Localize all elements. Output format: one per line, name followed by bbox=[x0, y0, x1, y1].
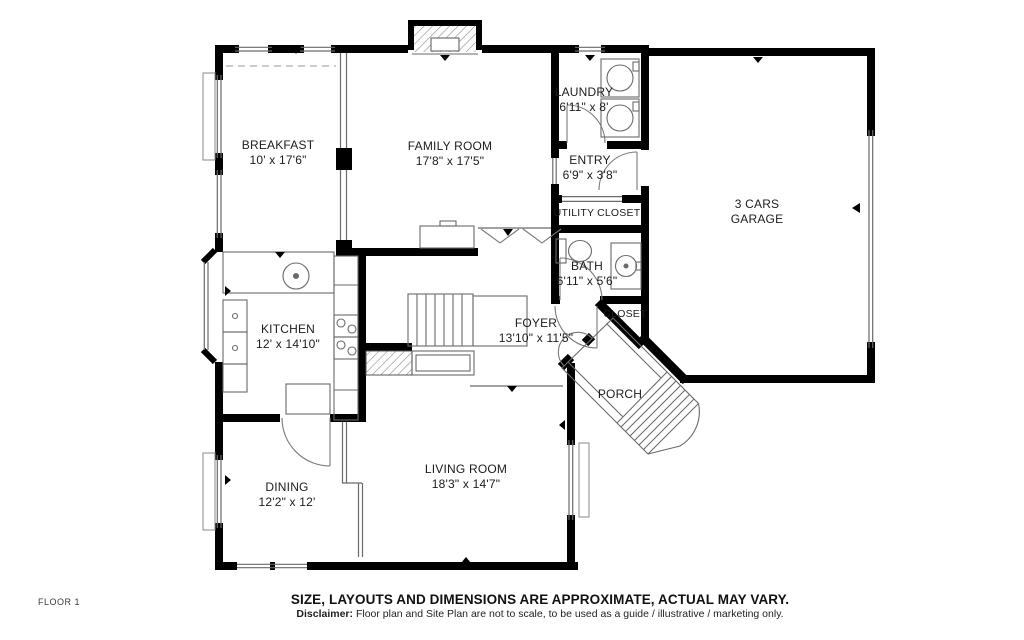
room-dims: 6'11" x 8' bbox=[555, 100, 614, 115]
room-dims: 13'10" x 11'5" bbox=[499, 331, 573, 346]
fireplace bbox=[408, 20, 482, 54]
room-label-garage: 3 CARS GARAGE bbox=[731, 197, 784, 227]
staircase bbox=[408, 221, 527, 375]
room-label-closet: CLOSET bbox=[603, 308, 646, 321]
room-name: LAUNDRY bbox=[555, 85, 614, 100]
room-name: GARAGE bbox=[731, 212, 784, 227]
room-name: DINING bbox=[258, 480, 315, 495]
room-label-utility-closet: UTILITY CLOSET bbox=[554, 207, 641, 220]
room-dims: 18'3" x 14'7" bbox=[425, 477, 507, 492]
room-name: LIVING ROOM bbox=[425, 462, 507, 477]
disclaimer-label: Disclaimer: bbox=[296, 608, 353, 620]
room-label-porch: PORCH bbox=[598, 387, 642, 402]
room-label-kitchen: KITCHEN 12' x 14'10" bbox=[256, 322, 320, 352]
room-name: FOYER bbox=[499, 316, 573, 331]
room-name: CLOSET bbox=[603, 308, 646, 321]
room-label-family-room: FAMILY ROOM 17'8" x 17'5" bbox=[408, 139, 492, 169]
room-name: BATH bbox=[557, 259, 618, 274]
footer-notice: SIZE, LAYOUTS AND DIMENSIONS ARE APPROXI… bbox=[56, 592, 1024, 620]
room-dims: 6'9" x 3'8" bbox=[563, 168, 618, 183]
room-dims: 12'2" x 12' bbox=[258, 495, 315, 510]
room-label-entry: ENTRY 6'9" x 3'8" bbox=[563, 153, 618, 183]
room-label-bath: BATH 6'11" x 5'6" bbox=[557, 259, 618, 289]
room-label-foyer: FOYER 13'10" x 11'5" bbox=[499, 316, 573, 346]
room-dims: 12' x 14'10" bbox=[256, 337, 320, 352]
room-name: KITCHEN bbox=[256, 322, 320, 337]
room-name: BREAKFAST bbox=[242, 138, 315, 153]
footer-headline: SIZE, LAYOUTS AND DIMENSIONS ARE APPROXI… bbox=[56, 592, 1024, 607]
room-name: 3 CARS bbox=[731, 197, 784, 212]
under-stair-closet-hatch bbox=[366, 351, 412, 375]
room-label-dining: DINING 12'2" x 12' bbox=[258, 480, 315, 510]
room-label-laundry: LAUNDRY 6'11" x 8' bbox=[555, 85, 614, 115]
room-dims: 10' x 17'6" bbox=[242, 153, 315, 168]
room-label-living-room: LIVING ROOM 18'3" x 14'7" bbox=[425, 462, 507, 492]
room-dims: 6'11" x 5'6" bbox=[557, 274, 618, 289]
disclaimer-text: Floor plan and Site Plan are not to scal… bbox=[356, 608, 784, 620]
floor-plan-page: BREAKFAST 10' x 17'6" FAMILY ROOM 17'8" … bbox=[0, 0, 1024, 640]
room-name: ENTRY bbox=[563, 153, 618, 168]
room-name: FAMILY ROOM bbox=[408, 139, 492, 154]
footer-disclaimer: Disclaimer: Floor plan and Site Plan are… bbox=[56, 608, 1024, 620]
dimension-ticks bbox=[225, 47, 860, 563]
room-name: UTILITY CLOSET bbox=[554, 207, 641, 220]
room-dims: 17'8" x 17'5" bbox=[408, 154, 492, 169]
room-label-breakfast: BREAKFAST 10' x 17'6" bbox=[242, 138, 315, 168]
room-name: PORCH bbox=[598, 387, 642, 402]
